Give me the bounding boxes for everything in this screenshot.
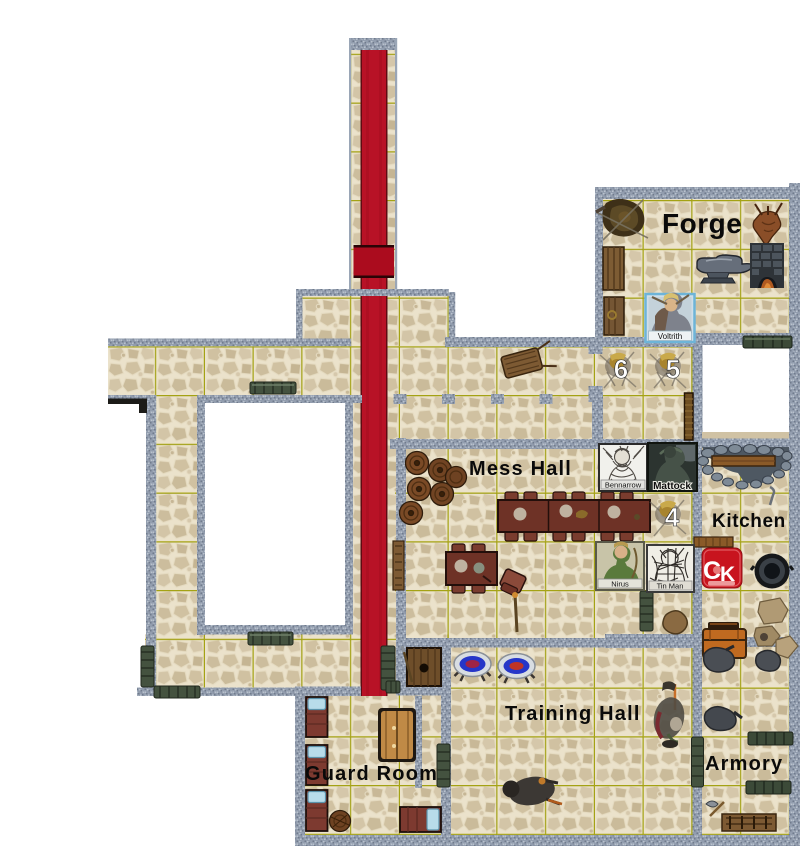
svg-text:6: 6 [614,354,628,384]
svg-text:4: 4 [665,502,680,532]
svg-text:Guard Room: Guard Room [305,763,438,785]
svg-text:Forge: Forge [662,208,742,239]
svg-text:Training Hall: Training Hall [505,703,641,725]
svg-text:5: 5 [666,354,680,384]
svg-text:Voltrith: Voltrith [658,332,682,341]
svg-text:Kitchen: Kitchen [712,511,786,532]
svg-text:Mattock: Mattock [653,481,691,492]
svg-text:Nirus: Nirus [611,580,629,589]
svg-text:Mess Hall: Mess Hall [469,458,572,480]
svg-text:Tin Man: Tin Man [657,582,684,591]
svg-text:Bennarrow: Bennarrow [605,481,642,490]
svg-text:Armory: Armory [705,753,783,775]
